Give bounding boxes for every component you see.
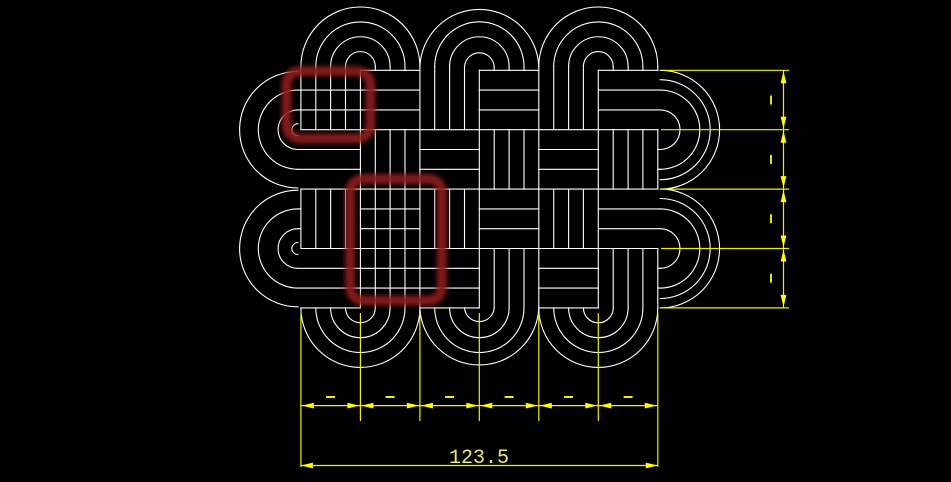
svg-text:123.5: 123.5: [449, 447, 509, 470]
